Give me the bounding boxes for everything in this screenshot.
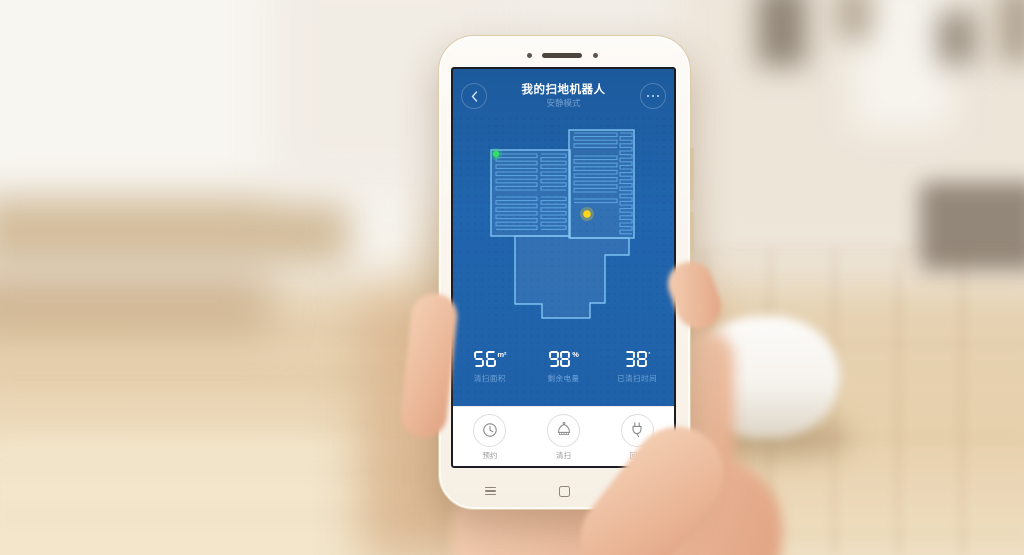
stat-battery: % 剩余电量	[527, 351, 601, 384]
schedule-button[interactable]: 预约	[453, 407, 527, 467]
background-object	[758, 0, 806, 66]
schedule-clock-icon	[481, 421, 499, 439]
app-header: 我的扫地机器人 安静模式	[453, 69, 674, 117]
power-button	[690, 212, 694, 252]
background-object	[938, 12, 976, 64]
home-key[interactable]	[554, 484, 576, 498]
volume-button	[690, 148, 694, 200]
stat-label: 剩余电量	[527, 373, 601, 384]
stat-label: 清扫面积	[453, 373, 527, 384]
scene: 我的扫地机器人 安静模式 m² 清扫面积 % 剩余电量	[0, 0, 1024, 555]
background-object	[836, 0, 872, 40]
background-furniture-edge	[0, 196, 350, 266]
stat-value	[473, 351, 496, 372]
stat-area-cleaned: m² 清扫面积	[453, 351, 527, 384]
front-camera	[593, 53, 598, 58]
menu-icon	[485, 487, 496, 496]
stat-time: ′ 已清扫时间	[600, 351, 674, 384]
app-view: 我的扫地机器人 安静模式 m² 清扫面积 % 剩余电量	[453, 69, 674, 466]
more-dots-icon	[647, 95, 659, 97]
background-object	[1000, 0, 1024, 62]
stat-value	[548, 351, 571, 372]
stats-row: m² 清扫面积 % 剩余电量 ′ 已清扫时间	[453, 351, 674, 384]
stat-unit: ′	[648, 350, 650, 359]
earpiece-speaker	[542, 53, 582, 58]
background-furniture-shadow	[0, 272, 270, 332]
menu-key[interactable]	[479, 484, 501, 498]
more-menu-button[interactable]	[640, 83, 666, 109]
proximity-sensor	[527, 53, 532, 58]
stat-unit: %	[572, 350, 579, 359]
wood-floor-planks	[0, 330, 420, 555]
stat-label: 已清扫时间	[600, 373, 674, 384]
stat-value	[624, 351, 647, 372]
stat-unit: m²	[497, 350, 506, 359]
home-icon	[559, 486, 570, 497]
recharge-plug-icon	[628, 421, 646, 439]
phone-screen: 我的扫地机器人 安静模式 m² 清扫面积 % 剩余电量	[451, 67, 676, 468]
clean-broom-icon	[555, 421, 573, 439]
clean-button[interactable]: 清扫	[527, 407, 601, 467]
